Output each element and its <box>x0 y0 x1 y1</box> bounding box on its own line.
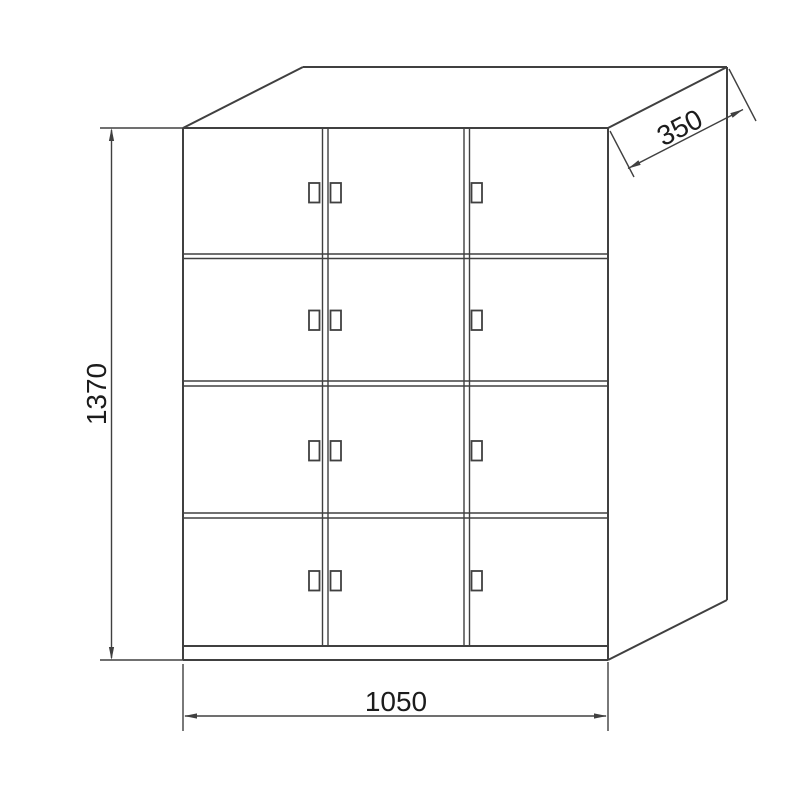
technical-drawing-page: 1370 1050 350 <box>0 0 800 800</box>
width-dimension-label: 1050 <box>365 686 427 717</box>
door-handle <box>472 183 483 203</box>
door-handles <box>309 183 482 591</box>
door-handle <box>309 183 320 203</box>
door-handle <box>472 571 483 591</box>
cabinet-outline <box>183 67 727 660</box>
arrowhead-left-icon <box>184 713 197 718</box>
horizontal-shelf-dividers <box>183 254 608 518</box>
door-handle <box>331 311 342 331</box>
width-dimension: 1050 <box>183 662 608 731</box>
arrowhead-up-icon <box>109 128 114 141</box>
height-dimension: 1370 <box>81 128 183 660</box>
arrowhead-lower-icon <box>628 160 641 168</box>
door-handle <box>472 311 483 331</box>
extension-line <box>100 128 183 660</box>
door-handle <box>309 441 320 461</box>
door-handle <box>331 571 342 591</box>
height-dimension-label: 1370 <box>81 363 112 425</box>
cabinet-body <box>183 67 727 660</box>
vertical-door-dividers <box>323 128 470 646</box>
depth-dimension-label: 350 <box>652 103 708 152</box>
door-handle <box>309 571 320 591</box>
door-handle <box>309 311 320 331</box>
door-handle <box>331 441 342 461</box>
door-handle <box>472 441 483 461</box>
locker-cabinet-technical-drawing: 1370 1050 350 <box>0 0 800 800</box>
door-handle <box>331 183 342 203</box>
depth-dimension: 350 <box>610 69 756 177</box>
arrowhead-right-icon <box>594 713 607 718</box>
arrowhead-upper-icon <box>730 110 743 118</box>
arrowhead-down-icon <box>109 647 114 660</box>
